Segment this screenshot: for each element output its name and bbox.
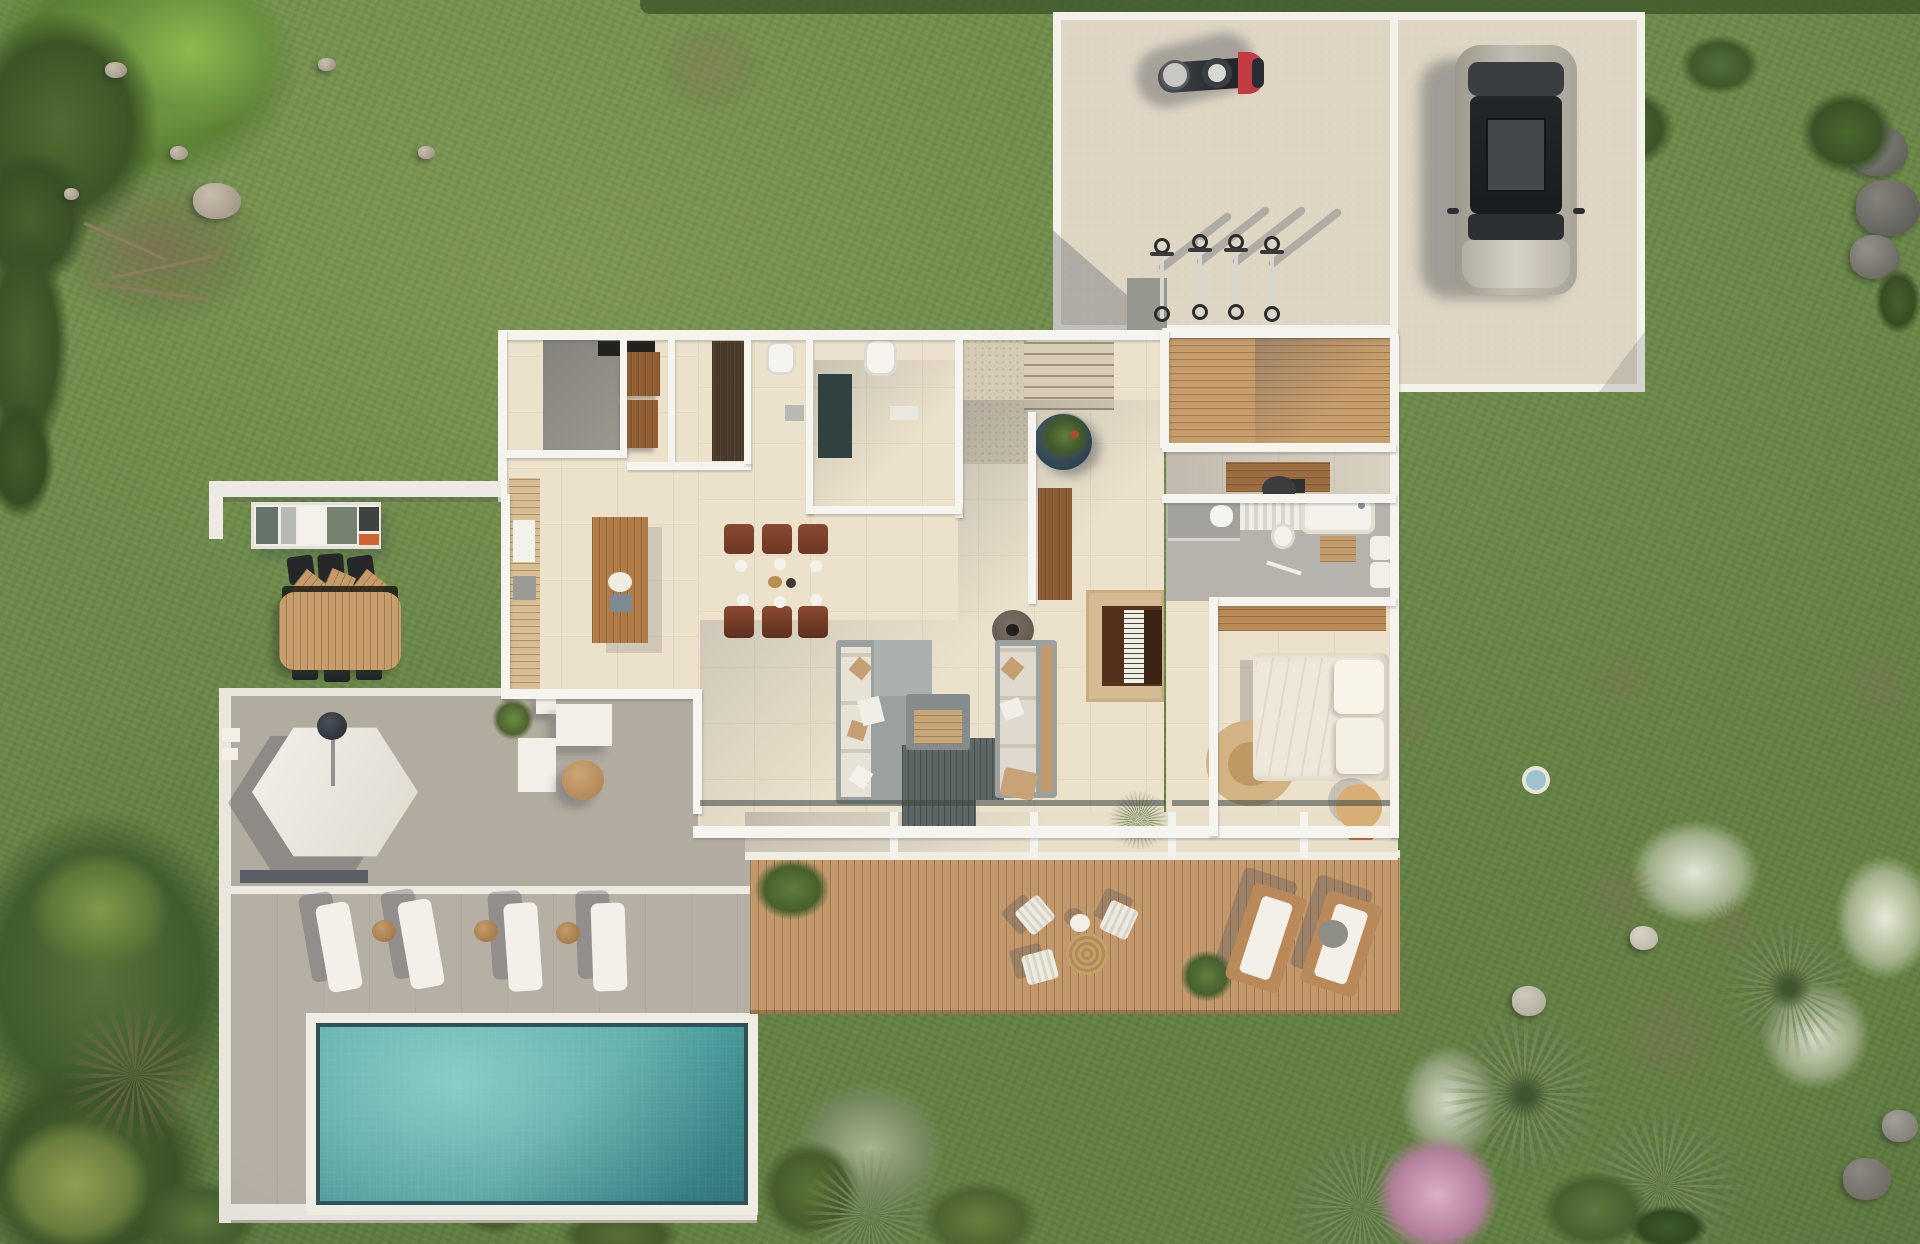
- shower-glass: [1168, 538, 1240, 541]
- dry-shrub: [60, 990, 210, 1160]
- sun-lounger: [590, 902, 627, 991]
- rock: [418, 146, 435, 159]
- glass-sliding-wall-bedroom: [1172, 800, 1390, 806]
- car-mirror-right: [1573, 208, 1585, 214]
- outdoor-bench: [518, 738, 556, 792]
- wall-laundry-south: [806, 506, 962, 514]
- dark-bush: [1628, 1205, 1708, 1244]
- island-sink: [608, 572, 632, 592]
- wc-basin: [766, 341, 796, 375]
- plate: [810, 594, 822, 606]
- sofa-right-wood-back: [1041, 646, 1053, 792]
- bird-bath: [1522, 766, 1550, 794]
- deck-side-table: [1070, 914, 1090, 932]
- wicker-side-table: [556, 922, 580, 944]
- bed-pillows: [1336, 718, 1384, 774]
- wall-corridor-south: [627, 462, 751, 470]
- bed-duvet: [1256, 658, 1336, 776]
- serving-bowl: [768, 576, 782, 588]
- motorcycle-engine: [1202, 58, 1232, 88]
- plate: [774, 596, 786, 608]
- palm-core: [1766, 965, 1812, 1011]
- pouf: [1318, 920, 1348, 948]
- wicker-side-table: [372, 920, 396, 942]
- potted-palm: [1108, 790, 1170, 850]
- bicycle-wheel: [1192, 304, 1208, 320]
- wall-north: [498, 330, 1170, 340]
- wall-courtyard-east: [1028, 412, 1036, 604]
- wall-kitchen-south: [501, 689, 701, 699]
- bicycle-wheel: [1228, 304, 1244, 320]
- coffee-table-tray: [914, 710, 962, 744]
- stepping-stone: [1512, 986, 1546, 1016]
- motorcycle-front-wheel: [1252, 58, 1264, 88]
- wall-study-south: [1162, 494, 1396, 503]
- wall-room-divider-1: [668, 340, 675, 464]
- armchair: [1336, 784, 1382, 830]
- laundry-counter-teal: [818, 374, 852, 458]
- bicycle-handlebar: [1150, 252, 1174, 256]
- bath-wood-mat: [1320, 536, 1356, 562]
- deck-south-edge: [750, 1010, 1400, 1014]
- wall-shelf: [890, 406, 918, 420]
- umbrella-pole: [331, 740, 335, 786]
- wall-mudroom-east: [620, 340, 627, 454]
- fire-bowl-center: [1006, 624, 1019, 636]
- deck-bush: [754, 858, 830, 920]
- outdoor-kitchen-glass-door: [256, 507, 278, 544]
- plate: [810, 560, 822, 572]
- wall-north-right-wing: [1162, 328, 1398, 338]
- wall-sink: [785, 405, 804, 421]
- rock-gray: [1843, 1158, 1891, 1200]
- piano-lid: [1144, 610, 1162, 684]
- bush-bright: [30, 850, 170, 970]
- toilet: [1210, 505, 1233, 527]
- wall-mudroom-south: [505, 450, 627, 458]
- garden-path: [209, 481, 501, 497]
- outdoor-kitchen-panel: [299, 507, 325, 544]
- hall-console-wood: [1038, 488, 1072, 600]
- bicycle-wheel: [1154, 306, 1170, 322]
- island-cutting-board: [610, 594, 632, 612]
- dry-shrub: [1836, 640, 1920, 732]
- pedestal-sink: [1271, 523, 1295, 549]
- wall-west-lower: [501, 494, 510, 699]
- wicker-side-table: [474, 920, 498, 942]
- bathtub-small: [864, 338, 897, 376]
- aerial-villa-render: [0, 0, 1920, 1244]
- bath-stool: [1370, 536, 1392, 560]
- wall-east: [1390, 334, 1399, 838]
- sun-lounger: [503, 902, 543, 992]
- patio-light-fixture: [222, 728, 240, 742]
- entry-hall-shadow: [1255, 338, 1390, 444]
- sofa-left-chaise: [874, 640, 932, 696]
- bath-faucet: [1358, 502, 1365, 509]
- patio-light-fixture: [222, 748, 238, 760]
- plate: [737, 594, 749, 606]
- rock-gray: [1856, 180, 1920, 236]
- car-mirror-left: [1447, 208, 1459, 214]
- planter-red-flower: [1070, 430, 1079, 439]
- glass-sliding-wall: [700, 800, 1165, 806]
- bicycle-wheel: [1264, 306, 1280, 322]
- dry-shrub: [1580, 648, 1660, 712]
- motorcycle-rear-wheel: [1160, 60, 1190, 90]
- plate: [735, 560, 747, 572]
- wall-west-upper: [498, 330, 507, 502]
- wall-living-west: [693, 689, 702, 814]
- slat-rug: [902, 745, 976, 827]
- storage-unit-dark: [712, 341, 744, 461]
- dark-bush: [1875, 268, 1920, 334]
- jute-mat: [1066, 933, 1108, 975]
- stepping-stone: [1630, 926, 1658, 950]
- dirt-patch: [655, 20, 765, 115]
- bed-pillows: [1334, 660, 1384, 714]
- dark-bush: [1680, 35, 1760, 95]
- outdoor-kitchen-orange-drawer: [359, 534, 379, 545]
- wood-deck: [750, 856, 1400, 1014]
- bath-stool: [1370, 562, 1392, 588]
- wall-bedroom-west: [1209, 597, 1218, 836]
- dining-chair: [798, 524, 828, 554]
- patio-step-bench: [240, 870, 368, 883]
- rock: [193, 183, 241, 219]
- bicycle-handlebar: [1188, 248, 1212, 252]
- garden-dining-table: [279, 592, 401, 670]
- plate: [774, 558, 786, 570]
- wall-hall-west: [1160, 330, 1169, 448]
- dark-bush: [1800, 90, 1895, 175]
- wall-room-divider-2: [744, 340, 751, 464]
- wood-wardrobe: [624, 400, 658, 448]
- wall-bedroom-north: [1209, 597, 1396, 606]
- umbrella-pole-top: [317, 712, 347, 740]
- wall-room-divider-3: [806, 340, 813, 514]
- kitchen-cooktop: [513, 576, 536, 600]
- rock-gray: [1882, 1110, 1918, 1142]
- rock: [64, 188, 79, 200]
- wall-hall-south: [1162, 443, 1396, 452]
- dining-chair: [762, 524, 792, 554]
- potted-bush: [492, 698, 534, 740]
- car-rear-window: [1468, 62, 1564, 96]
- round-wood-table: [562, 760, 604, 800]
- wall-south: [693, 826, 1398, 838]
- rock: [105, 62, 127, 78]
- garden-path-stub: [209, 481, 223, 539]
- rock: [170, 146, 188, 160]
- planter-cube: [556, 704, 612, 746]
- pink-flowering-tree: [1375, 1135, 1500, 1244]
- bicycle-handlebar: [1260, 250, 1284, 254]
- pool-water: [320, 1027, 744, 1201]
- car-open-sunroof: [1486, 118, 1546, 192]
- serving-bowl: [786, 578, 796, 588]
- outdoor-kitchen-door: [281, 507, 296, 544]
- car-hood: [1462, 240, 1570, 288]
- rock: [318, 58, 336, 71]
- bicycle-handlebar: [1224, 248, 1248, 252]
- patio-divider-line: [231, 886, 757, 894]
- palm-core: [1500, 1070, 1550, 1120]
- outdoor-kitchen-glass-panel: [327, 507, 357, 544]
- outdoor-kitchen-appliance: [359, 507, 379, 531]
- wall-courtyard-west: [955, 338, 963, 518]
- kitchen-oven: [513, 520, 535, 562]
- planter-foliage: [1040, 412, 1090, 460]
- floor-mudroom-gray: [543, 340, 620, 452]
- car-windshield: [1468, 214, 1564, 240]
- dining-chair: [724, 524, 754, 554]
- piano-keys: [1124, 610, 1144, 684]
- bedroom-console: [1218, 605, 1386, 631]
- wood-wardrobe: [624, 352, 660, 396]
